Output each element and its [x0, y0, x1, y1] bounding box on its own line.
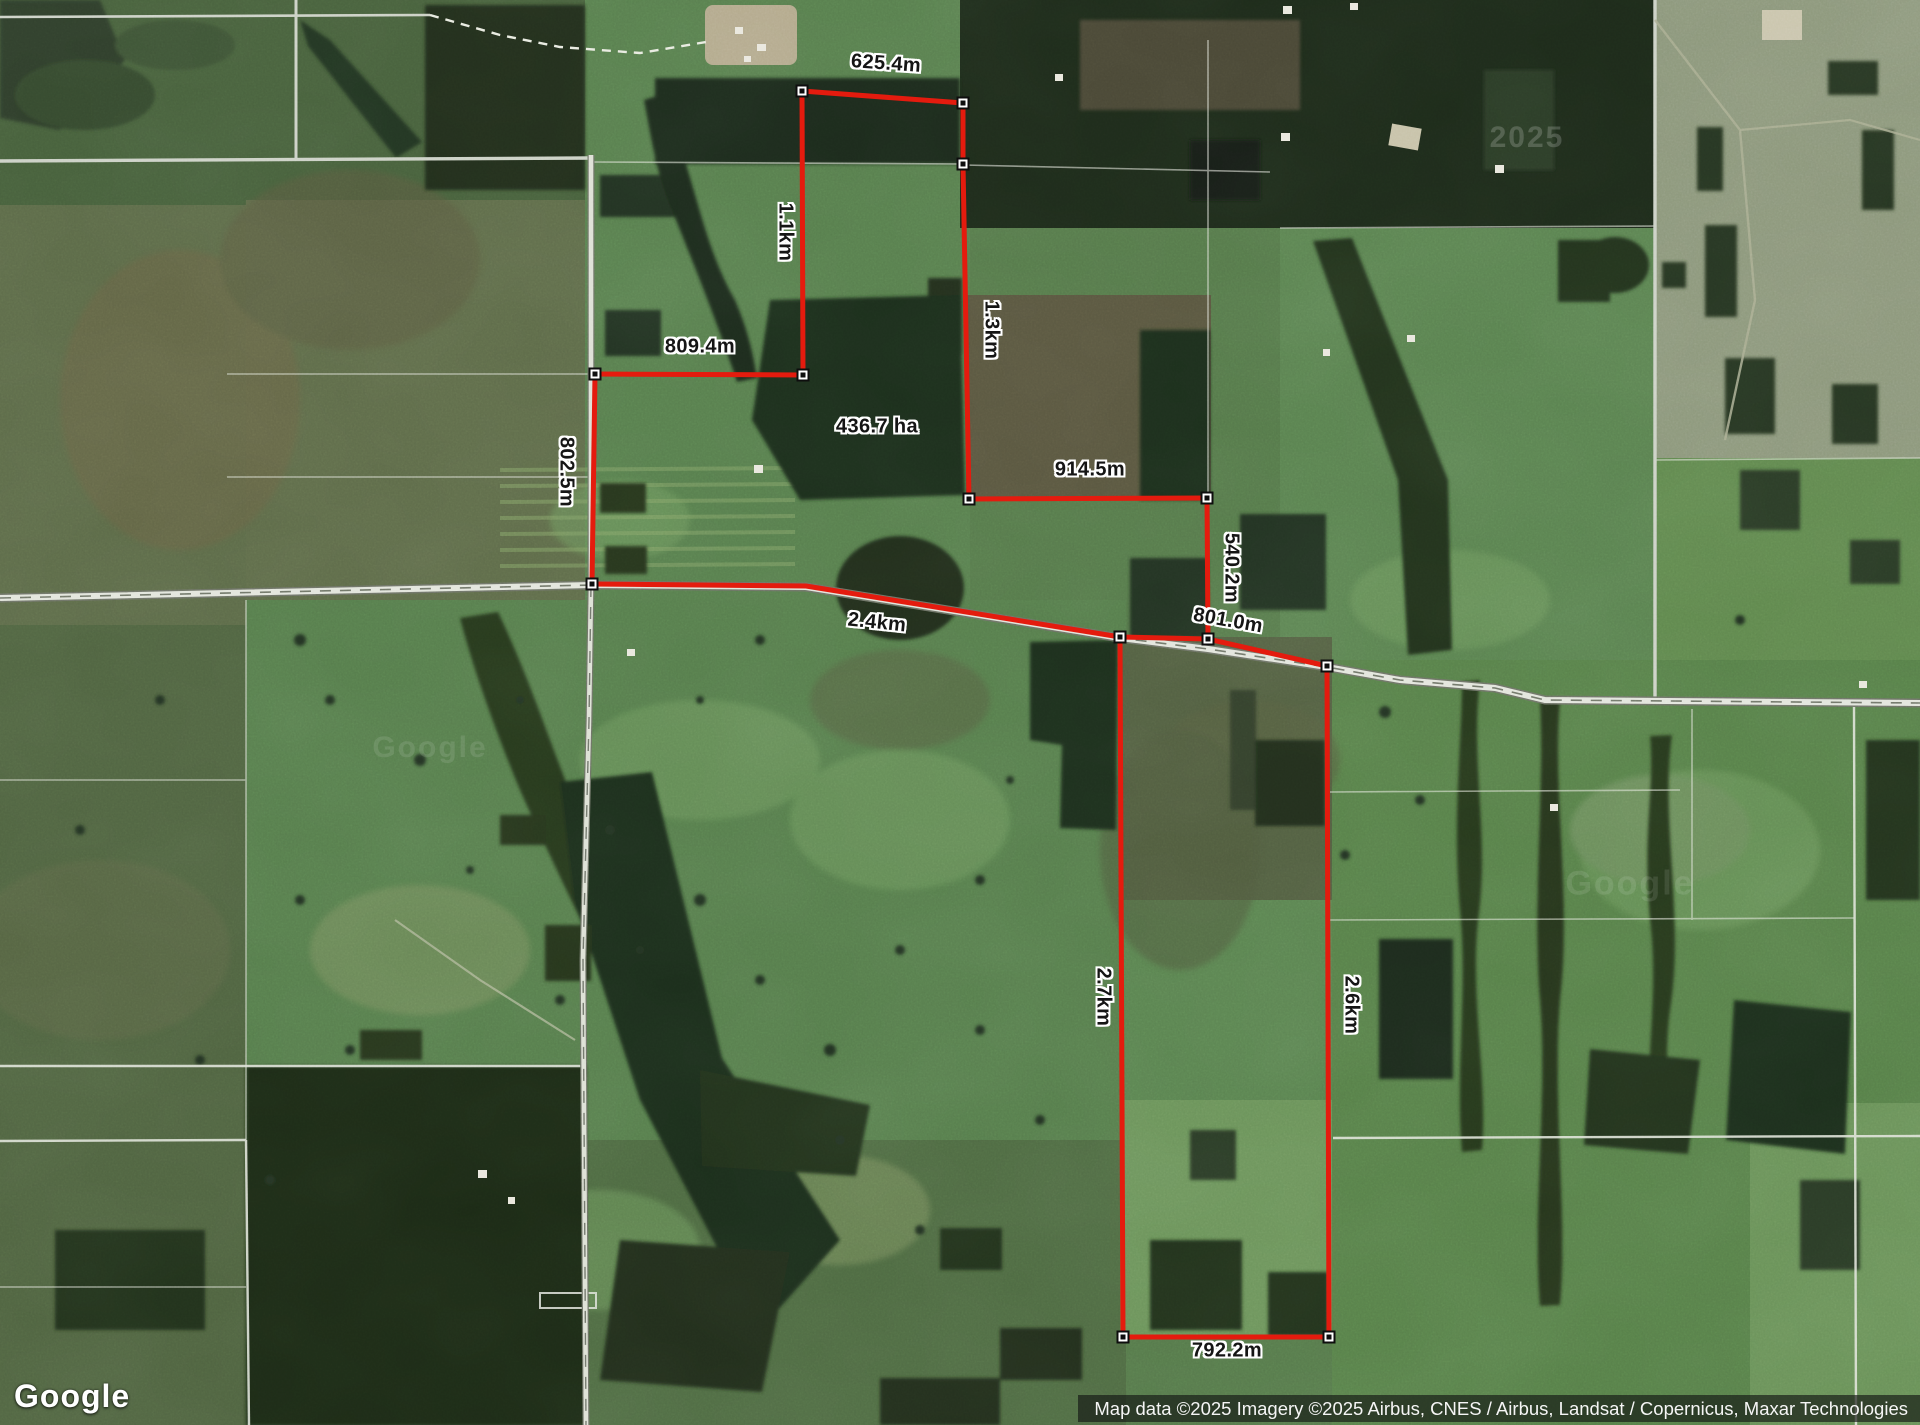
vertex-marker[interactable] [796, 85, 809, 98]
map-canvas[interactable]: 625.4m1.1km1.3km809.4m914.5m802.5m540.2m… [0, 0, 1920, 1425]
distance-label: 802.5m [555, 437, 578, 507]
vertex-marker[interactable] [963, 493, 976, 506]
distance-label: 792.2m [1192, 1340, 1262, 1363]
vertex-marker[interactable] [589, 368, 602, 381]
measurement-line[interactable] [969, 498, 1207, 499]
distance-label: 1.1km [774, 203, 797, 262]
vertex-marker[interactable] [1117, 1331, 1130, 1344]
measurement-line[interactable] [595, 374, 803, 375]
vertex-marker[interactable] [957, 158, 970, 171]
google-logo[interactable]: Google [14, 1378, 130, 1415]
distance-label: 809.4m [665, 336, 735, 359]
measurement-line[interactable] [802, 91, 803, 375]
distance-label: 625.4m [850, 50, 922, 78]
vertex-marker[interactable] [1114, 631, 1127, 644]
measurement-line[interactable] [1327, 666, 1329, 1337]
distance-label: 914.5m [1055, 459, 1125, 482]
area-label: 436.7 ha [836, 416, 918, 439]
attribution-text: Map data ©2025 Imagery ©2025 Airbus, CNE… [1094, 1398, 1908, 1419]
distance-label: 2.6km [1340, 976, 1363, 1035]
measurement-line[interactable] [1120, 637, 1123, 1337]
vertex-marker[interactable] [586, 578, 599, 591]
vertex-marker[interactable] [1323, 1331, 1336, 1344]
attribution-bar: Map data ©2025 Imagery ©2025 Airbus, CNE… [1078, 1395, 1920, 1422]
vertex-marker[interactable] [1202, 633, 1215, 646]
vertex-marker[interactable] [1321, 660, 1334, 673]
vertex-marker[interactable] [957, 97, 970, 110]
vertex-marker[interactable] [797, 369, 810, 382]
distance-label: 1.3km [980, 301, 1003, 360]
satellite-imagery [0, 0, 1920, 1425]
distance-label: 540.2m [1220, 533, 1243, 603]
distance-label: 2.7km [1092, 968, 1115, 1027]
measurement-line[interactable] [592, 374, 595, 584]
vertex-marker[interactable] [1201, 492, 1214, 505]
